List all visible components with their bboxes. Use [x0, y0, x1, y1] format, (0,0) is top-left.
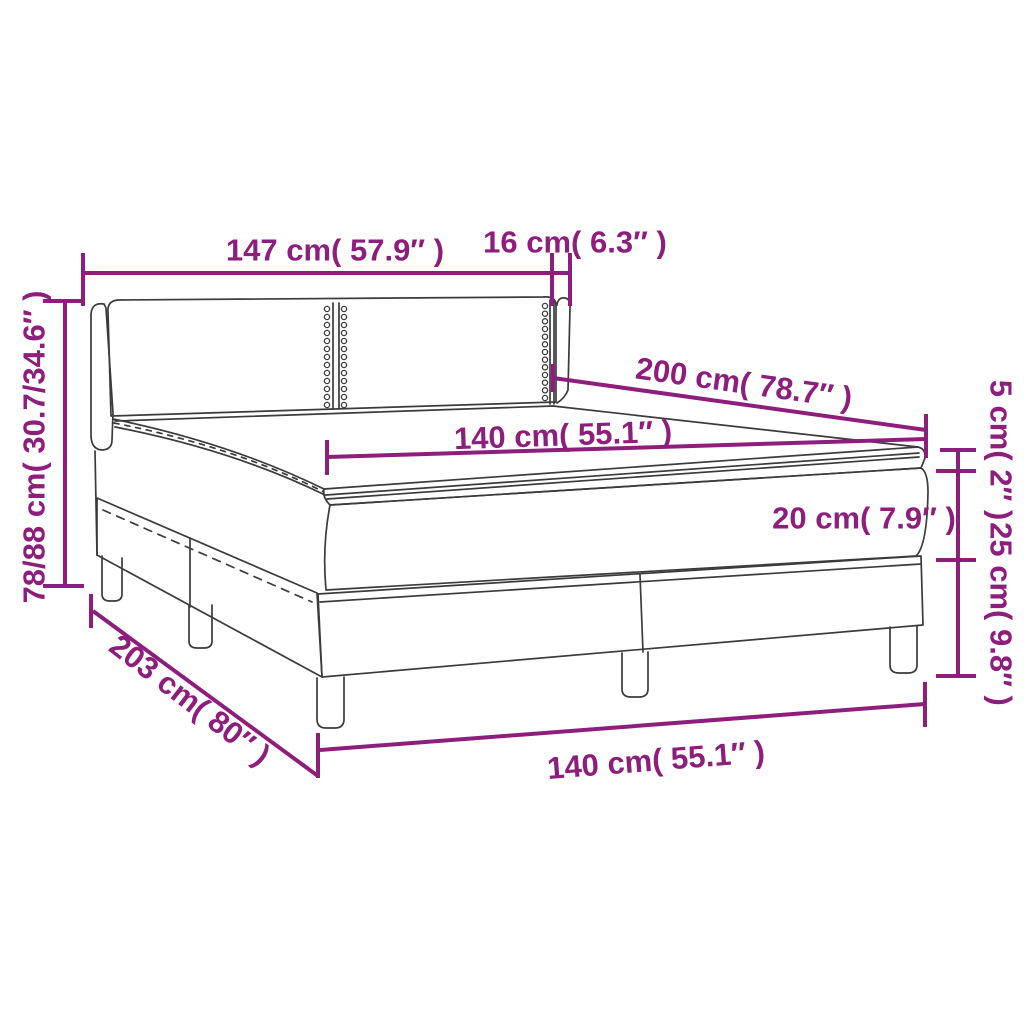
leg-3	[317, 677, 344, 728]
base-front-face	[318, 556, 923, 677]
label-mattress-width: 140 cm( 55.1″ )	[453, 416, 672, 455]
label-headboard-wing-depth: 16 cm( 6.3″ )	[483, 227, 667, 258]
mattress-top-left-piping	[115, 427, 325, 495]
label-headboard-width: 147 cm( 57.9″ )	[226, 235, 444, 266]
headboard-panel	[108, 297, 556, 416]
mattress-top-left-edge	[113, 419, 324, 489]
nailhead-dots-right	[341, 306, 346, 407]
leg-5	[890, 626, 917, 673]
label-topper-height: 5 cm( 2″ )	[986, 380, 1017, 521]
headboard-right-wing	[557, 298, 570, 403]
dim-line-bed-length	[91, 594, 318, 776]
base-front-seam	[640, 575, 643, 652]
dimension-diagram: 147 cm( 57.9″ ) 16 cm( 6.3″ ) 78/88 cm( …	[0, 0, 1024, 1024]
dim-line-height-bracket	[936, 450, 976, 676]
label-mattress-height: 20 cm( 7.9″ )	[772, 503, 956, 534]
label-base-height: 25 cm( 9.8″ )	[986, 522, 1017, 706]
base-front-piping	[320, 564, 921, 602]
label-overall-height: 78/88 cm( 30.7/34.6″ )	[19, 291, 50, 604]
leg-4	[622, 652, 648, 697]
nailhead-dots	[542, 303, 547, 400]
nailhead-strip-center	[324, 303, 346, 409]
base-side-stitching	[103, 510, 312, 602]
nailhead-dots-left	[324, 306, 329, 407]
topper-piping-2	[327, 457, 919, 499]
